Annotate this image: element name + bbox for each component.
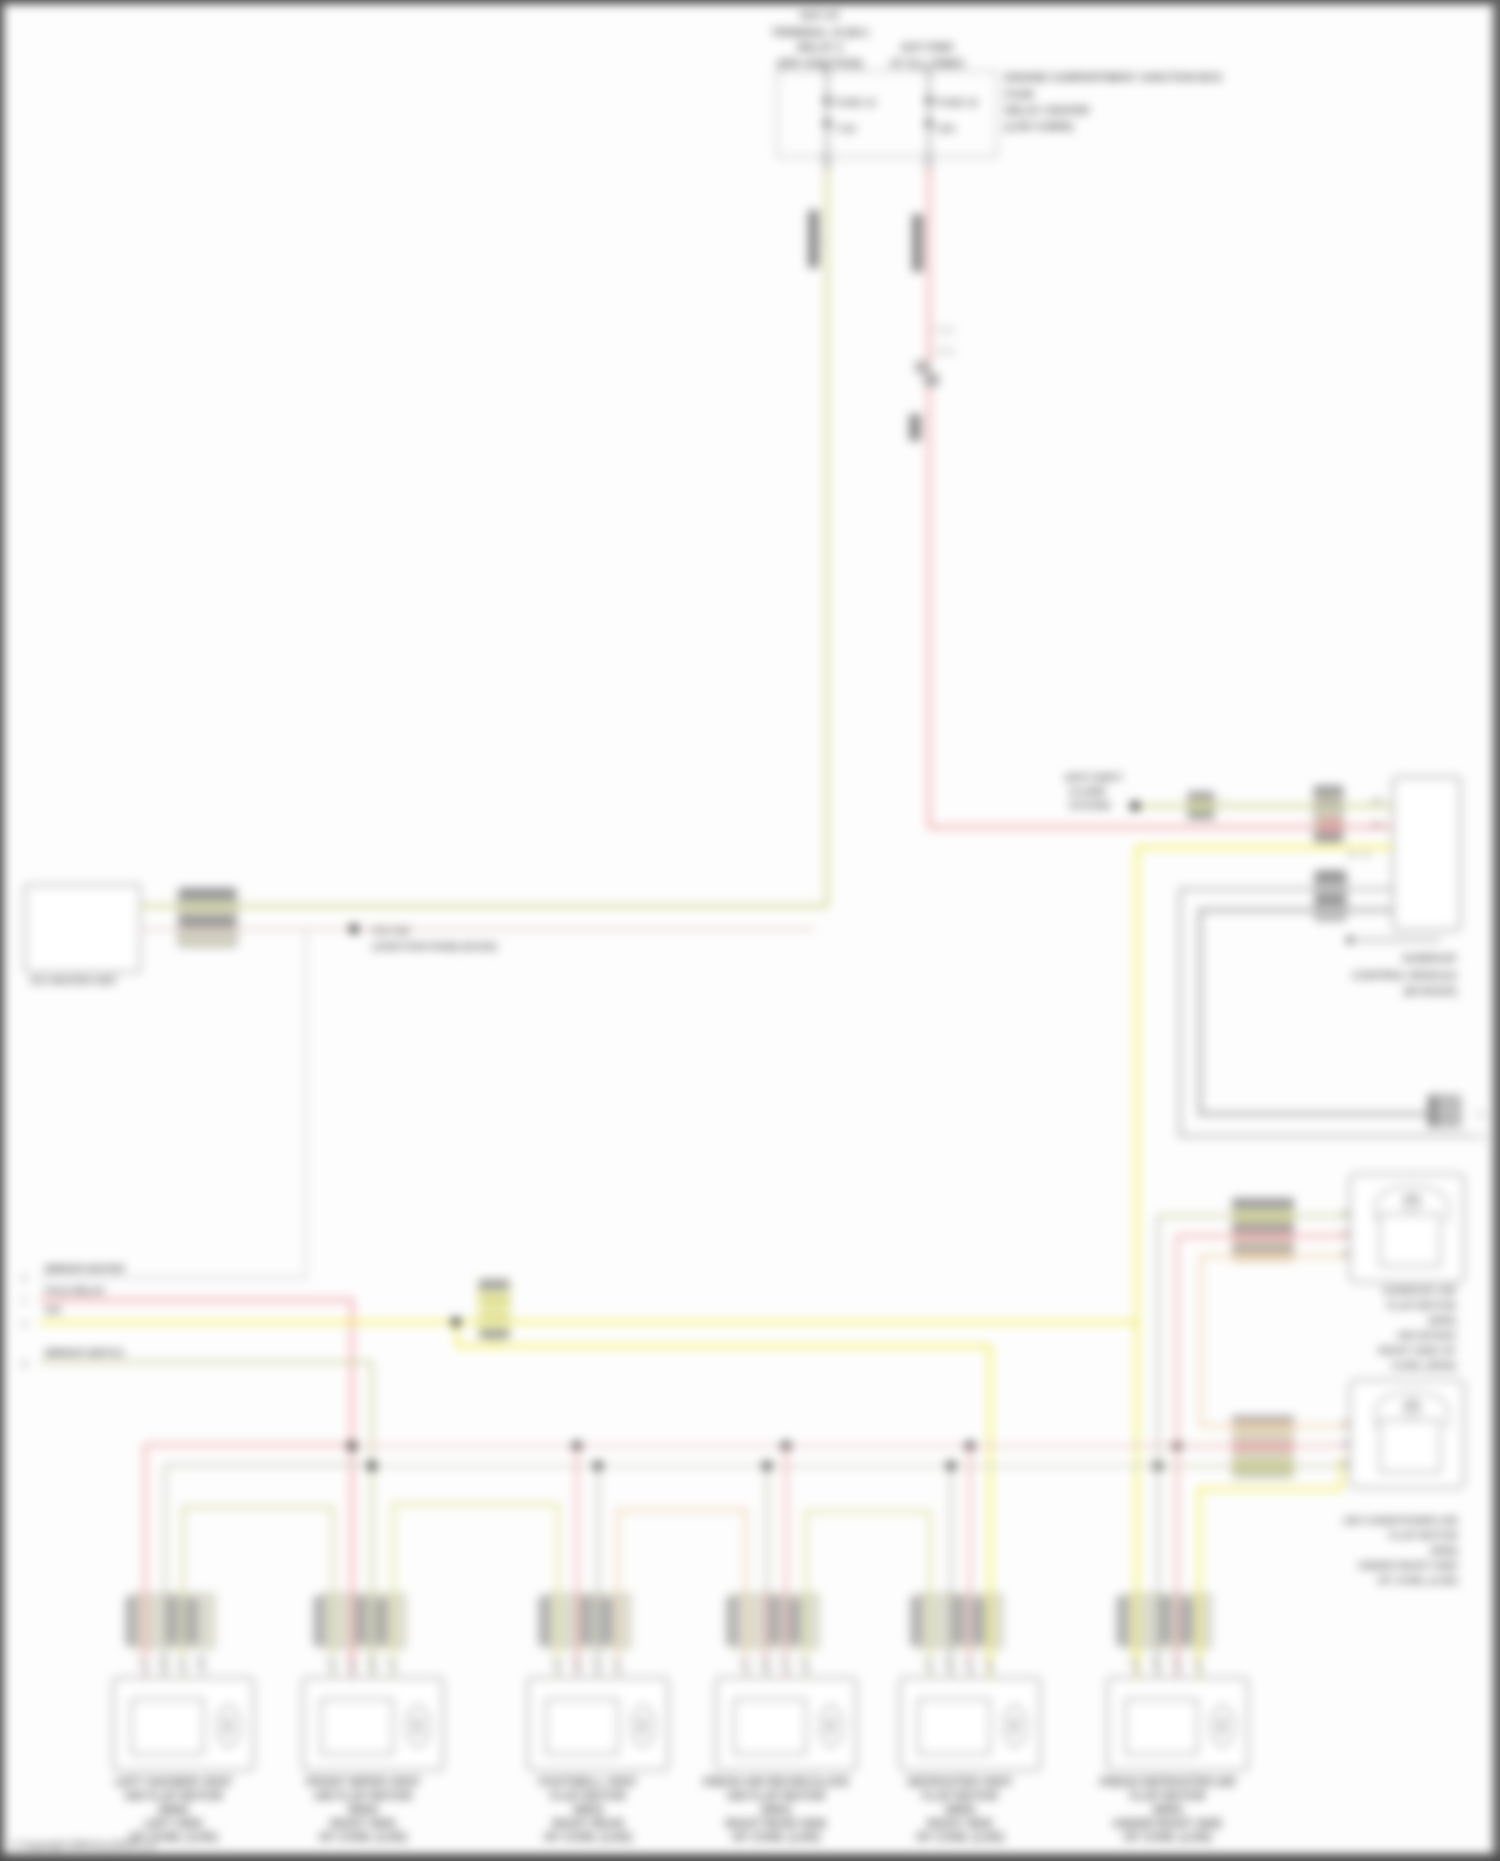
svg-text:(M62): (M62)	[761, 1805, 791, 1817]
svg-text:AIR CONDITIONER AIR: AIR CONDITIONER AIR	[1343, 1515, 1459, 1527]
svg-text:LEFT SHOWER VENT: LEFT SHOWER VENT	[115, 1777, 233, 1789]
svg-text:1: 1	[1222, 796, 1227, 805]
svg-text:AIR FLAP MOTOR: AIR FLAP MOTOR	[124, 1791, 223, 1803]
svg-text:(M35): (M35)	[1429, 1315, 1456, 1327]
svg-text:FUSE: FUSE	[1005, 89, 1034, 101]
svg-text:ANTI-THEFT: ANTI-THEFT	[1064, 773, 1123, 784]
svg-text:(E/R JUNCTION): (E/R JUNCTION)	[778, 58, 863, 70]
svg-text:G1: G1	[1476, 1110, 1487, 1119]
svg-text:DEFROSTER VENT: DEFROSTER VENT	[908, 1777, 1013, 1789]
svg-text:7.5A: 7.5A	[835, 124, 856, 135]
svg-text:SYSTEM: SYSTEM	[1069, 801, 1110, 812]
svg-text:25A: 25A	[45, 1305, 62, 1315]
svg-text:AIR INTAKE: AIR INTAKE	[1397, 1330, 1456, 1342]
svg-text:MIRROR HEATER: MIRROR HEATER	[45, 1264, 125, 1275]
svg-text:HOT AT: HOT AT	[800, 10, 840, 22]
svg-text:(M66): (M66)	[158, 1805, 188, 1817]
svg-text:10A: 10A	[937, 124, 955, 135]
svg-text:C211: C211	[934, 346, 955, 356]
svg-text:FLAP MOTOR: FLAP MOTOR	[550, 1791, 626, 1803]
svg-text:OF COWL (LHD): OF COWL (LHD)	[1123, 1832, 1212, 1844]
svg-text:(M64): (M64)	[348, 1805, 378, 1817]
svg-text:7: 7	[22, 1297, 27, 1306]
svg-text:RELAY 2: RELAY 2	[797, 42, 842, 54]
svg-text:CONTROL MODULE: CONTROL MODULE	[1352, 970, 1457, 982]
svg-text:RIGHT SIDE: RIGHT SIDE	[330, 1818, 396, 1830]
svg-text:FOLD RELAY: FOLD RELAY	[45, 1286, 105, 1297]
svg-text:FLAP MOTOR: FLAP MOTOR	[1389, 1530, 1458, 1542]
svg-text:FRESH AIR RECIRCULATE: FRESH AIR RECIRCULATE	[703, 1777, 850, 1789]
svg-text:OF COWL (LHD): OF COWL (LHD)	[732, 1832, 821, 1844]
svg-text:1: 1	[483, 1285, 488, 1294]
svg-text:FLAP MOTOR: FLAP MOTOR	[922, 1791, 998, 1803]
svg-text:FRONT WIPER VENT: FRONT WIPER VENT	[306, 1777, 420, 1789]
svg-text:FOOTWELL VENT: FOOTWELL VENT	[539, 1777, 637, 1789]
svg-text:OF COWL (LHD): OF COWL (LHD)	[1377, 1575, 1458, 1587]
svg-text:(M65): (M65)	[945, 1805, 975, 1817]
svg-text:AIR FLAP MOTOR: AIR FLAP MOTOR	[727, 1791, 826, 1803]
svg-text:© Copyright 2009 ALLDATA LLC: © Copyright 2009 ALLDATA LLC	[12, 1840, 157, 1851]
svg-text:ALARM: ALARM	[1069, 787, 1105, 798]
svg-text:8: 8	[22, 1360, 27, 1369]
svg-text:AIR FLAP MOTOR: AIR FLAP MOTOR	[314, 1791, 413, 1803]
svg-text:RIGHT SIDE OF: RIGHT SIDE OF	[1378, 1345, 1456, 1357]
svg-text:FLAP MOTOR: FLAP MOTOR	[1130, 1791, 1206, 1803]
svg-text:A/C-HEATER UNIT: A/C-HEATER UNIT	[30, 976, 117, 987]
svg-text:FRESH DEFROSTER AIR: FRESH DEFROSTER AIR	[1100, 1777, 1236, 1789]
svg-text:2: 2	[22, 1274, 27, 1283]
svg-text:(M36): (M36)	[1431, 1545, 1458, 1557]
svg-text:MIRROR SWITCH: MIRROR SWITCH	[45, 1348, 124, 1359]
svg-text:ENGINE COMPARTMENT JUNCTION BO: ENGINE COMPARTMENT JUNCTION BOX	[1005, 72, 1223, 84]
svg-text:SUNROOF AIR: SUNROOF AIR	[1383, 1285, 1457, 1297]
svg-text:RIGHT REAR: RIGHT REAR	[552, 1818, 624, 1830]
svg-text:OF COWL (LHD): OF COWL (LHD)	[544, 1832, 633, 1844]
svg-text:3: 3	[22, 1320, 27, 1329]
svg-text:HOT PWR: HOT PWR	[901, 42, 953, 54]
svg-text:(IN ROOF): (IN ROOF)	[1404, 986, 1457, 998]
svg-text:UNDER RIGHT SIDE: UNDER RIGHT SIDE	[1113, 1818, 1223, 1830]
svg-text:OF COWL (LHD): OF COWL (LHD)	[319, 1832, 408, 1844]
svg-text:LEFT SIDE: LEFT SIDE	[144, 1818, 203, 1830]
svg-text:RIGHT SIDE: RIGHT SIDE	[927, 1818, 993, 1830]
svg-text:C110: C110	[934, 325, 955, 335]
svg-text:G2: G2	[1476, 1133, 1487, 1142]
svg-text:FUSE 14: FUSE 14	[835, 98, 876, 109]
svg-text:TERMINAL 15 (B+): TERMINAL 15 (B+)	[772, 27, 869, 39]
svg-text:UNDER RIGHT SIDE: UNDER RIGHT SIDE	[1358, 1560, 1458, 1572]
svg-text:(M60): (M60)	[1152, 1805, 1182, 1817]
svg-text:(M63): (M63)	[573, 1805, 603, 1817]
svg-text:F15 15A: F15 15A	[372, 926, 410, 937]
svg-text:COWL (RHD): COWL (RHD)	[1391, 1360, 1456, 1372]
svg-text:FUSE 15: FUSE 15	[937, 98, 978, 109]
svg-text:FLAP MOTOR: FLAP MOTOR	[1387, 1300, 1456, 1312]
svg-text:OF COWL (LHD): OF COWL (LHD)	[916, 1832, 1005, 1844]
svg-text:RIGHT REAR SIDE: RIGHT REAR SIDE	[725, 1818, 827, 1830]
svg-text:(JUNCTION PANEL/DASH): (JUNCTION PANEL/DASH)	[372, 942, 497, 953]
svg-text:1: 1	[823, 238, 828, 247]
svg-text:RELAY CENTER: RELAY CENTER	[1005, 105, 1089, 117]
svg-text:SUNROOF: SUNROOF	[1402, 953, 1457, 965]
svg-text:(LHD CABIN): (LHD CABIN)	[1005, 121, 1073, 133]
